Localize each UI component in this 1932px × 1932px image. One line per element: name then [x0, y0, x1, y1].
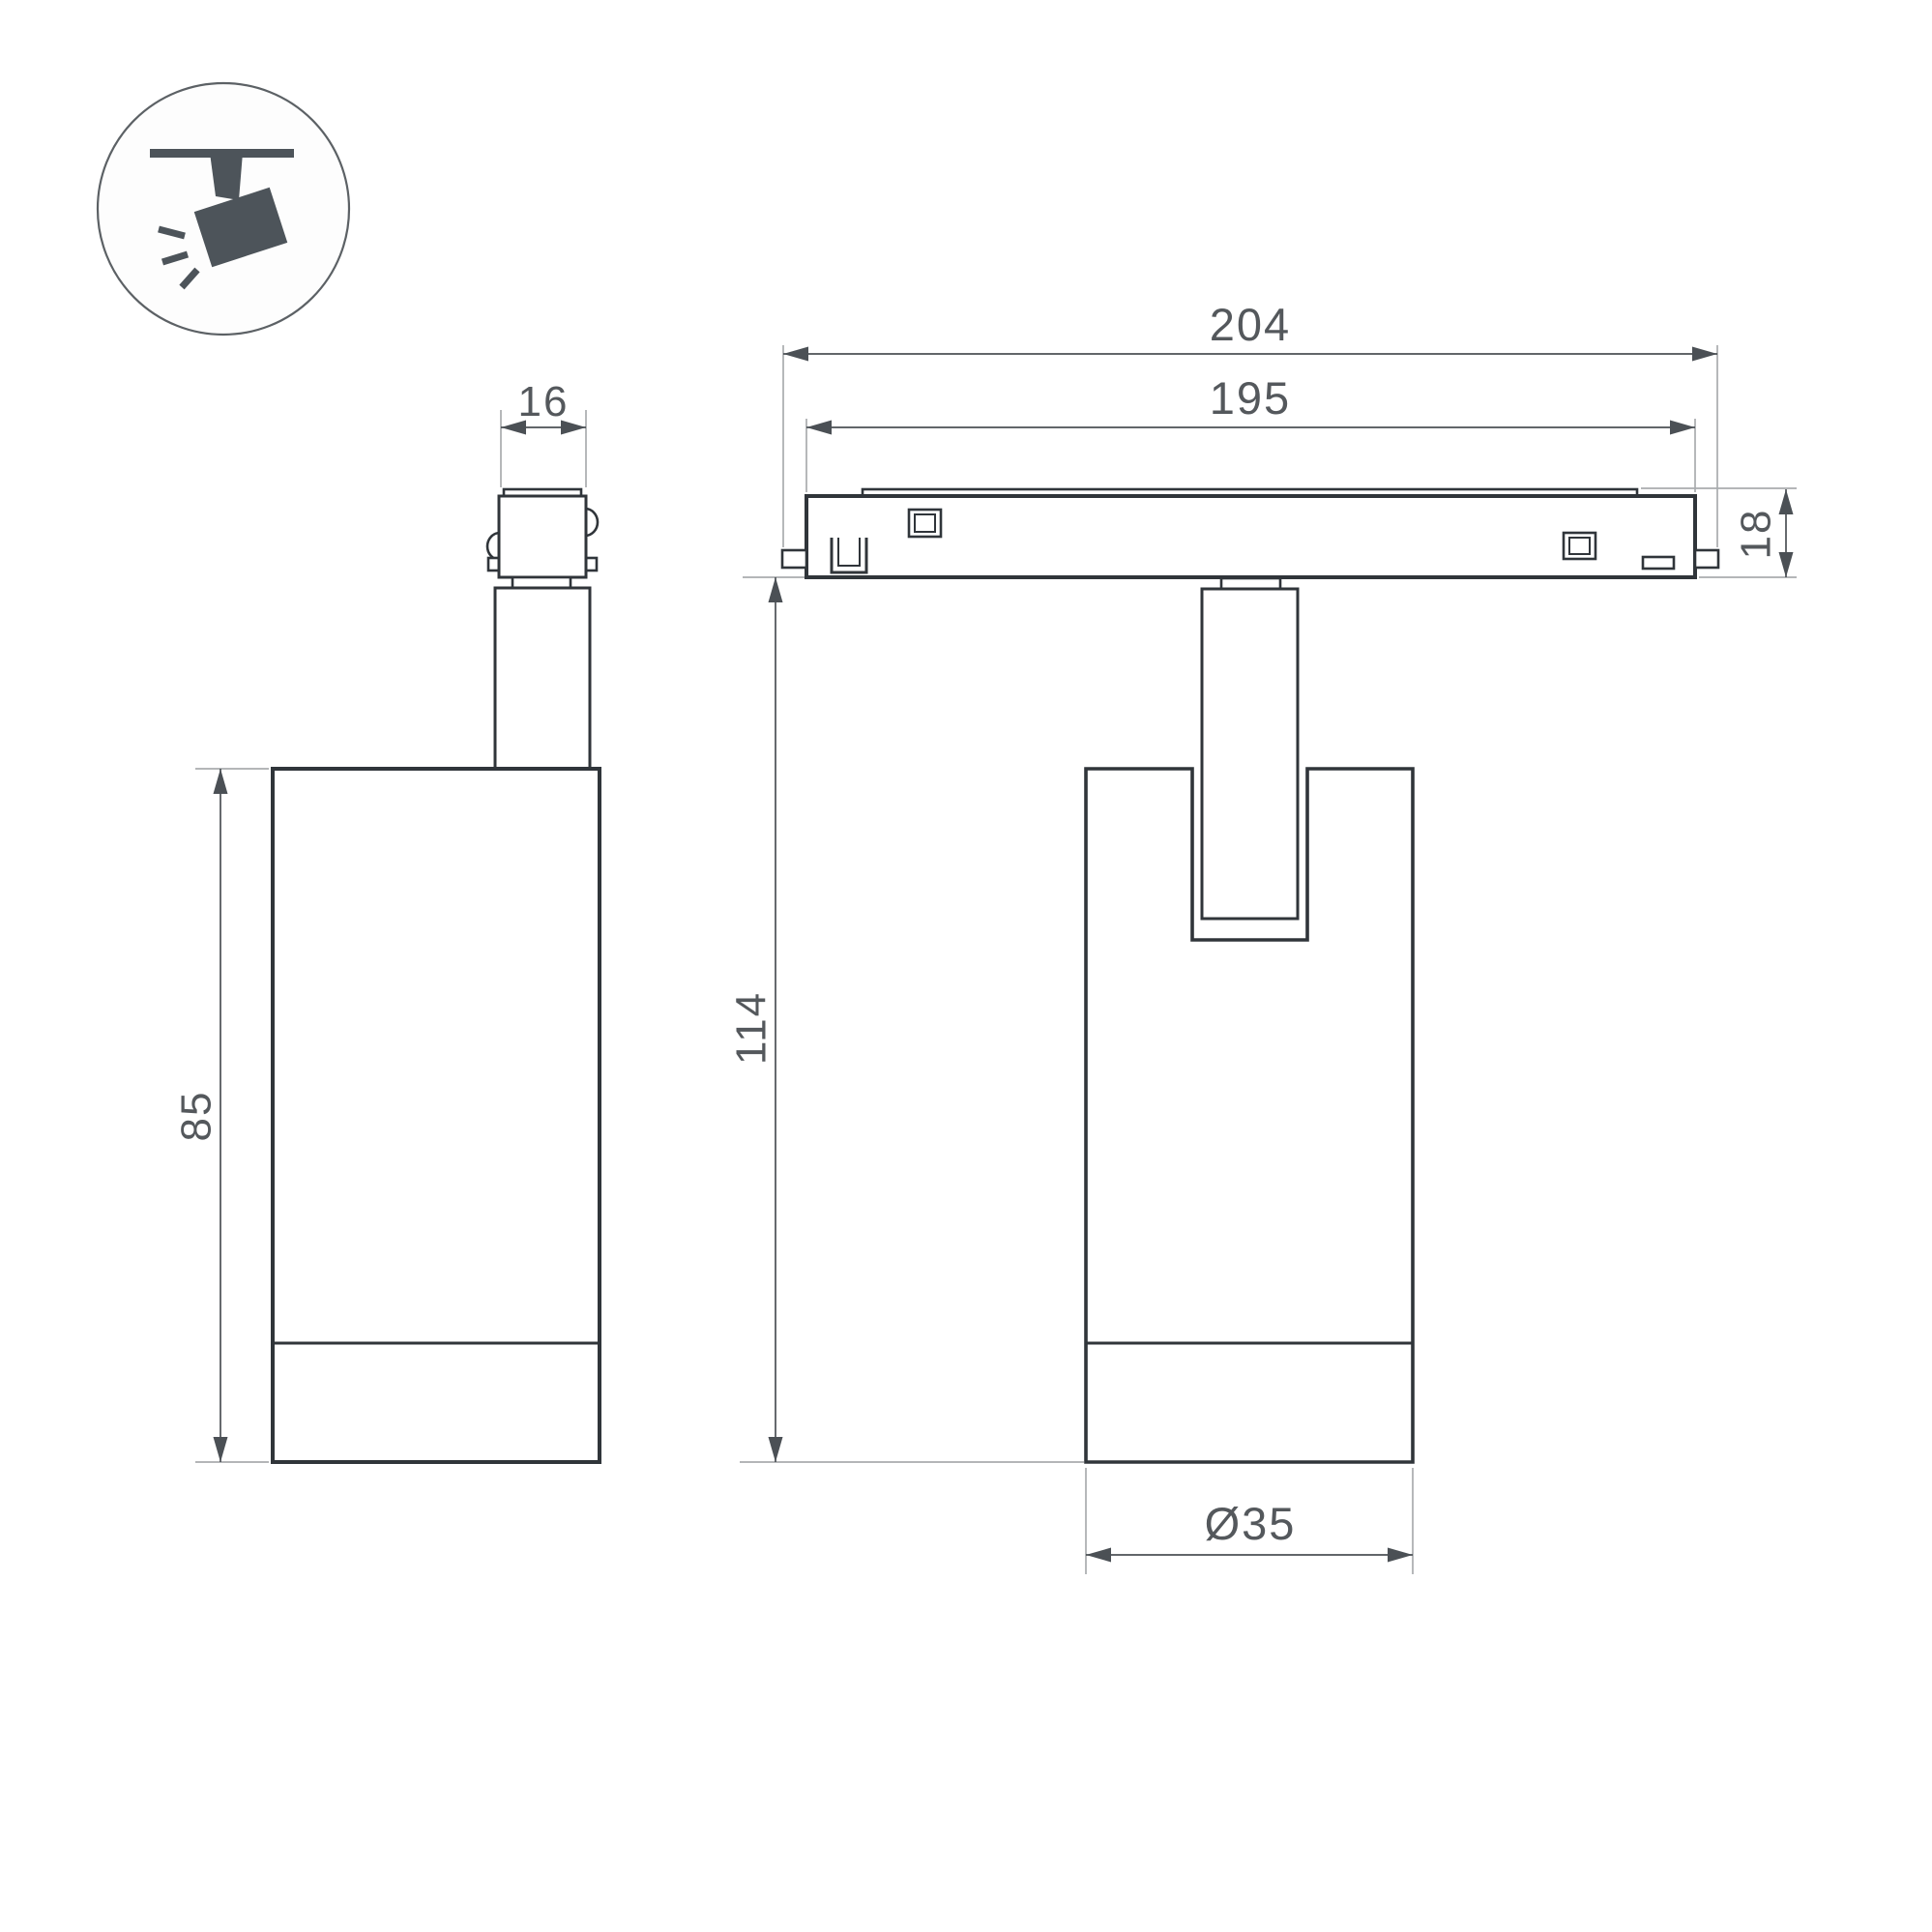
arrowhead-down: [1779, 552, 1794, 577]
arrowhead-left: [1086, 1548, 1111, 1563]
dimension-label: 16: [518, 378, 570, 425]
drawing-canvas: 16 85 204: [0, 0, 1932, 1932]
track-end-tab-left: [782, 550, 806, 568]
arrowhead-right: [1388, 1548, 1413, 1563]
arrowhead-up: [769, 577, 783, 602]
connector-body: [499, 496, 586, 577]
dim-stem-width: 16: [501, 378, 586, 487]
arrowhead-down: [769, 1437, 783, 1462]
arrowhead-down: [214, 1437, 228, 1462]
arrowhead-left: [806, 421, 832, 435]
stem-neck: [512, 577, 571, 588]
dimension-label: 85: [173, 1091, 220, 1142]
front-view: 204 195: [728, 299, 1798, 1574]
arrowhead-left: [783, 347, 808, 362]
side-view: 16 85: [173, 378, 600, 1462]
dimension-label: Ø35: [1205, 1498, 1297, 1549]
lamp-body: [273, 769, 600, 1462]
arrowhead-right: [1670, 421, 1695, 435]
dimension-label: 195: [1210, 372, 1291, 424]
product-icon: [98, 83, 349, 335]
dimension-label: 18: [1733, 509, 1780, 560]
track-slot-right: [1643, 557, 1674, 569]
stem: [1202, 589, 1298, 919]
dim-track-inner-length: 195: [806, 372, 1695, 492]
dimension-drawing: 16 85 204: [0, 0, 1932, 1932]
dim-body-diameter: Ø35: [1086, 1468, 1413, 1574]
dim-body-height: 85: [173, 769, 270, 1462]
track-end-tab-right: [1695, 550, 1718, 568]
arrowhead-up: [1779, 489, 1794, 514]
arrowhead-right: [1692, 347, 1717, 362]
dimension-label: 114: [728, 991, 776, 1065]
dim-fixture-height: 114: [728, 577, 1085, 1462]
arrowhead-up: [214, 769, 228, 794]
stem: [495, 588, 590, 769]
stem-neck: [1221, 578, 1280, 589]
dimension-label: 204: [1210, 299, 1291, 350]
